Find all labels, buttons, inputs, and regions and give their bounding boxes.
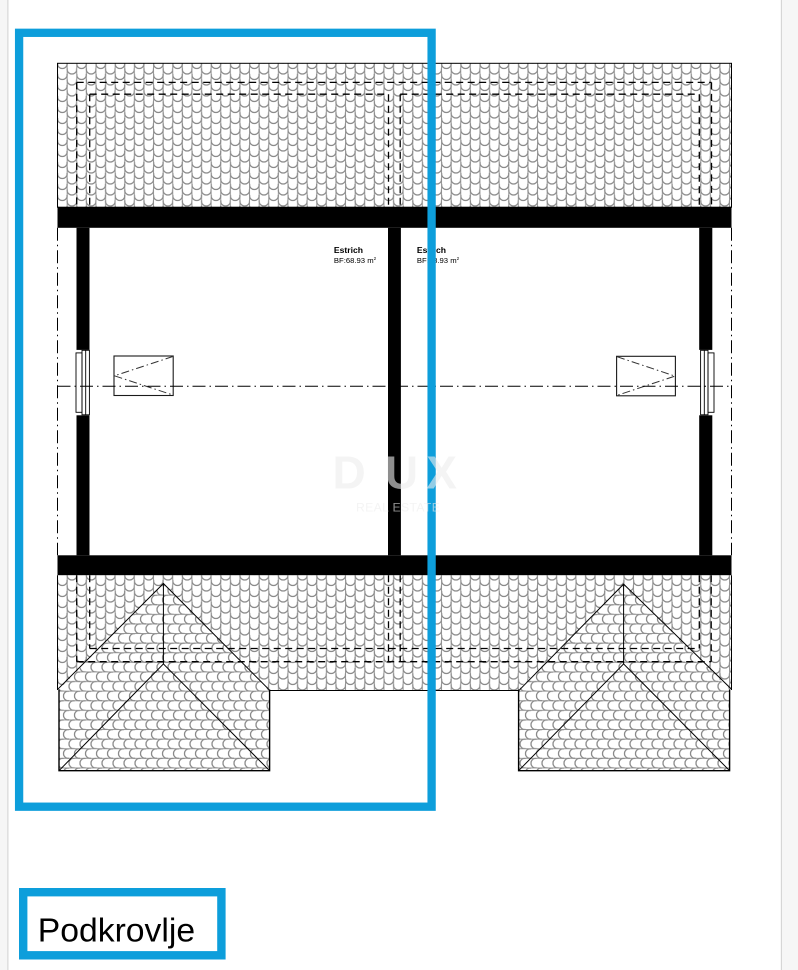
svg-text:Estrich: Estrich — [334, 245, 363, 255]
svg-text:X: X — [426, 446, 457, 498]
svg-text:Podkrovlje: Podkrovlje — [38, 912, 195, 950]
svg-text:D: D — [333, 446, 366, 498]
svg-text:BF:68.93 m2: BF:68.93 m2 — [334, 256, 377, 265]
svg-text:U: U — [385, 446, 418, 498]
svg-text:BF:68.93 m2: BF:68.93 m2 — [417, 256, 460, 265]
svg-text:REAL ESTATE: REAL ESTATE — [356, 501, 440, 515]
